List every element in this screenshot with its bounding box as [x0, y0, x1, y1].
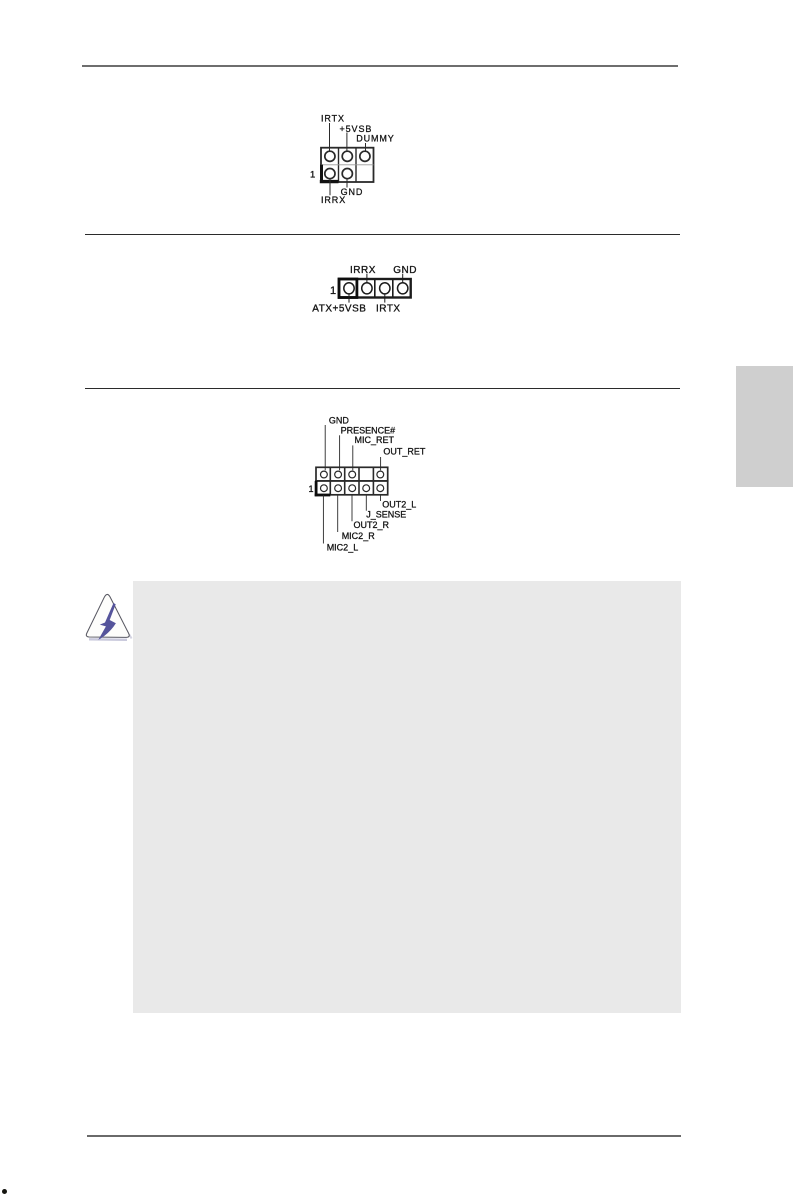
svg-text:IRTX: IRTX	[321, 114, 345, 124]
svg-text:+5VSB: +5VSB	[340, 124, 373, 134]
svg-text:1: 1	[309, 484, 314, 494]
svg-text:PRESENCE#: PRESENCE#	[341, 426, 396, 436]
svg-text:IRTX: IRTX	[376, 303, 401, 314]
svg-text:GND: GND	[329, 415, 350, 425]
svg-text:MIC_RET: MIC_RET	[355, 435, 395, 445]
svg-text:ATX+5VSB: ATX+5VSB	[312, 303, 366, 314]
svg-text:GND: GND	[393, 265, 417, 276]
svg-text:OUT_RET: OUT_RET	[383, 446, 426, 456]
svg-text:IRRX: IRRX	[350, 265, 376, 276]
svg-text:J_SENSE: J_SENSE	[366, 509, 406, 519]
svg-text:OUT2_L: OUT2_L	[382, 500, 416, 510]
svg-text:1: 1	[310, 169, 316, 180]
svg-text:OUT2_R: OUT2_R	[354, 520, 390, 530]
svg-text:IRRX: IRRX	[321, 195, 346, 205]
svg-text:MIC2_R: MIC2_R	[342, 531, 376, 541]
svg-text:MIC2_L: MIC2_L	[327, 543, 359, 553]
svg-text:1: 1	[330, 285, 337, 297]
svg-text:DUMMY: DUMMY	[356, 134, 395, 144]
